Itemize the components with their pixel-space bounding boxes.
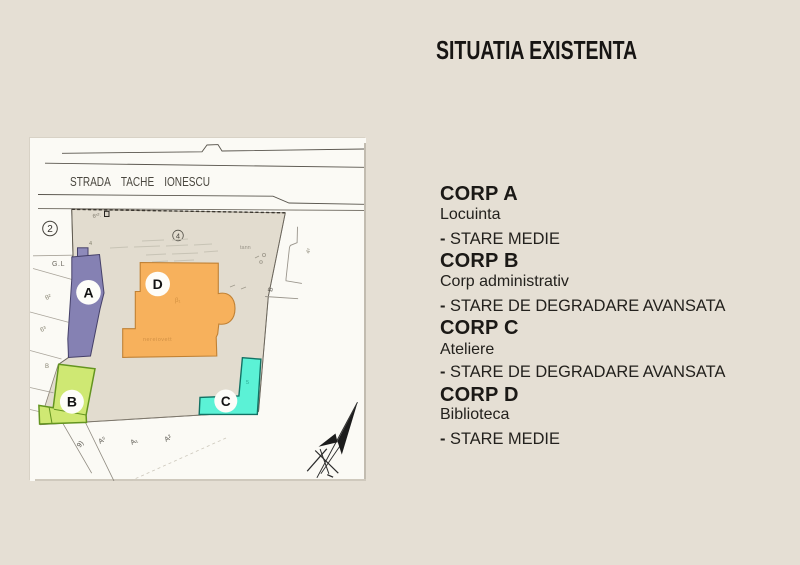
svg-text:A²: A² xyxy=(164,434,174,444)
svg-text:A⁵: A⁵ xyxy=(98,436,108,446)
svg-text:A: A xyxy=(83,284,93,300)
svg-text:B: B xyxy=(45,364,49,370)
svg-text:G.L: G.L xyxy=(52,261,65,268)
svg-text:5: 5 xyxy=(246,380,249,386)
svg-text:D: D xyxy=(153,276,163,292)
svg-text:B: B xyxy=(267,287,275,293)
svg-text:tann: tann xyxy=(240,245,251,251)
svg-text:6³: 6³ xyxy=(39,325,47,334)
svg-text:STRADA TACHE IONESCU: STRADA TACHE IONESCU xyxy=(70,174,210,189)
svg-text:2: 2 xyxy=(47,224,53,235)
svg-text:B: B xyxy=(67,394,77,410)
svg-text:nereiovett: nereiovett xyxy=(143,337,172,343)
svg-text:θ²: θ² xyxy=(44,293,52,302)
svg-text:A₁: A₁ xyxy=(130,437,140,447)
svg-text:4²: 4² xyxy=(305,248,313,255)
svg-text:C: C xyxy=(221,394,231,409)
svg-text:β₁: β₁ xyxy=(175,298,180,304)
svg-text:4: 4 xyxy=(89,241,92,247)
